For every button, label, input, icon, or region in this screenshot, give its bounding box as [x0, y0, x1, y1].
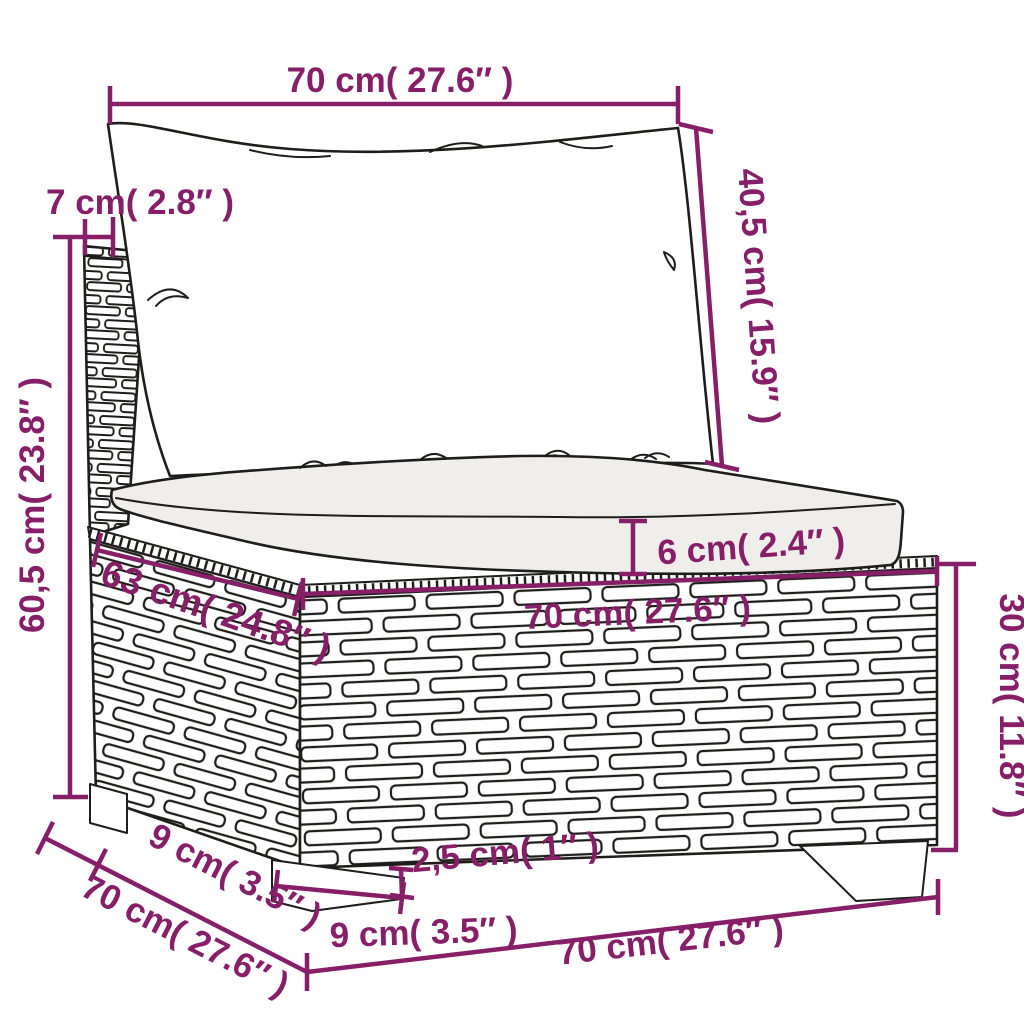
dim-total-height: 60,5 cm( 23.8″ ) — [13, 237, 88, 797]
dim-base-height: 30 cm( 11.8″ ) — [931, 564, 1024, 850]
dim-total-width-label: 70 cm( 27.6″ ) — [556, 908, 786, 972]
dim-total-height-line — [53, 237, 88, 797]
back-cushion-outline — [108, 123, 713, 476]
dim-total-height-label: 60,5 cm( 23.8″ ) — [13, 377, 52, 633]
back-cushion — [108, 123, 713, 476]
diagram-canvas: 70 cm( 27.6″ ) 7 cm( 2.8″ ) 60,5 cm( 23.… — [0, 0, 1024, 1024]
dim-top-width: 70 cm( 27.6″ ) — [110, 61, 678, 124]
dim-top-width-label: 70 cm( 27.6″ ) — [287, 61, 514, 100]
sofa-drawing — [84, 123, 937, 911]
dim-back-cushion-height-label: 40,5 cm( 15.9″ ) — [730, 167, 787, 425]
sofa-dimension-diagram: 70 cm( 27.6″ ) 7 cm( 2.8″ ) 60,5 cm( 23.… — [0, 0, 1024, 1024]
dim-base-height-label: 30 cm( 11.8″ ) — [992, 594, 1024, 819]
leg-front-right — [800, 841, 928, 901]
dim-post-depth-label: 7 cm( 2.8″ ) — [46, 183, 234, 222]
